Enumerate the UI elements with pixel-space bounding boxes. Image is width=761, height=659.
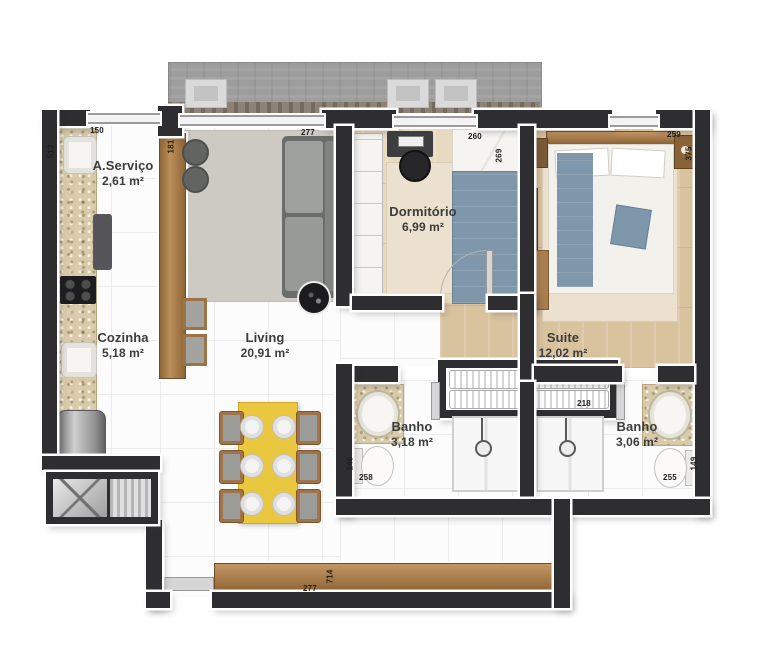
dining-chair [297,412,320,444]
room-label-dormitorio: Dormitório 6,99 m² [376,204,470,235]
dining-chair [297,451,320,483]
wall-segment [474,110,612,128]
window [394,116,476,127]
utility-shaft [46,472,158,524]
dimension-label: 375 [685,139,694,169]
window [610,116,658,127]
wall-segment [534,366,622,382]
dimension-label: 714 [326,562,335,592]
room-name: Suite [547,330,579,345]
room-area: 12,02 m² [526,346,600,361]
toilet [652,448,694,488]
room-name: Living [246,330,285,345]
room-area: 5,18 m² [86,346,160,361]
bed-pillow [452,129,520,175]
window [88,113,160,124]
wall-segment [212,592,570,608]
room-area: 6,99 m² [376,220,470,235]
place-setting [240,415,264,439]
bed-runner [557,153,593,287]
vent-grille [435,79,477,108]
dimension-label: 277 [303,584,317,593]
room-name: Cozinha [97,330,148,345]
bench [535,250,549,310]
dimension-label: 513 [47,137,56,167]
room-label-banho-suite: Banho 3,06 m² [606,419,668,450]
room-label-servico: A.Serviço 2,61 m² [78,158,168,189]
wall-segment [658,366,694,382]
dimension-label: 149 [690,449,699,479]
tall-cabinet [93,214,112,270]
wall-segment [336,126,352,306]
wall-segment [520,382,534,499]
place-setting [272,492,296,516]
wall-segment [146,592,170,608]
floor-plan: A.Serviço 2,61 m² Cozinha 5,18 m² Living… [0,0,761,659]
wall-segment [350,366,398,382]
wall-segment [322,110,396,128]
place-setting [272,454,296,478]
dimension-label: 218 [577,399,591,408]
dimension-label: 277 [301,128,315,137]
place-setting [240,492,264,516]
dimension-label: 269 [495,141,504,171]
nightstand [533,138,548,168]
room-area: 2,61 m² [78,174,168,189]
double-bed [548,144,674,294]
vent-grille [185,79,227,108]
bar-stool [183,298,207,330]
place-setting [240,454,264,478]
room-label-suite: Suite 12,02 m² [526,330,600,361]
bed-cushion [610,204,652,249]
dimension-label: 150 [90,126,104,135]
wall-segment [336,499,710,515]
bed-pillow [610,148,665,179]
bar-stool [183,334,207,366]
room-label-living: Living 20,91 m² [226,330,304,361]
entrance-door [164,577,214,591]
banho-social-door [431,382,440,420]
banho-suite-door [616,382,625,420]
room-label-cozinha: Cozinha 5,18 m² [86,330,160,361]
stove-cooktop [60,276,96,304]
dormitorio-door [486,250,493,298]
shaft-x-box [53,479,110,517]
dining-chair [297,490,320,522]
dimension-label: 259 [667,130,681,139]
place-setting [272,415,296,439]
vent-grille [387,79,429,108]
wall-segment [352,296,442,310]
desk-chair [399,150,431,182]
room-name: A.Serviço [93,158,154,173]
room-area: 3,06 m² [606,435,668,450]
side-table [299,283,329,313]
room-area: 20,91 m² [226,346,304,361]
window [180,115,324,126]
room-name: Dormitório [389,204,456,219]
dimension-label: 260 [468,132,482,141]
dimension-label: 255 [663,473,677,482]
room-label-banho-social: Banho 3,18 m² [382,419,442,450]
shower-head-knob [559,440,576,457]
dimension-label: 181 [167,132,176,162]
bar-stool [182,139,209,166]
sofa [282,136,340,298]
dimension-label: 258 [359,473,373,482]
wall-segment [520,126,534,310]
dimension-label: 146 [346,449,355,479]
bar-stool [182,166,209,193]
wall-segment [42,456,160,470]
wall-segment [336,364,352,515]
wall-segment [554,499,570,608]
shower-head-knob [475,440,492,457]
room-name: Banho [392,419,433,434]
shaft-hatch [110,479,151,517]
room-area: 3,18 m² [382,435,442,450]
room-name: Banho [617,419,658,434]
